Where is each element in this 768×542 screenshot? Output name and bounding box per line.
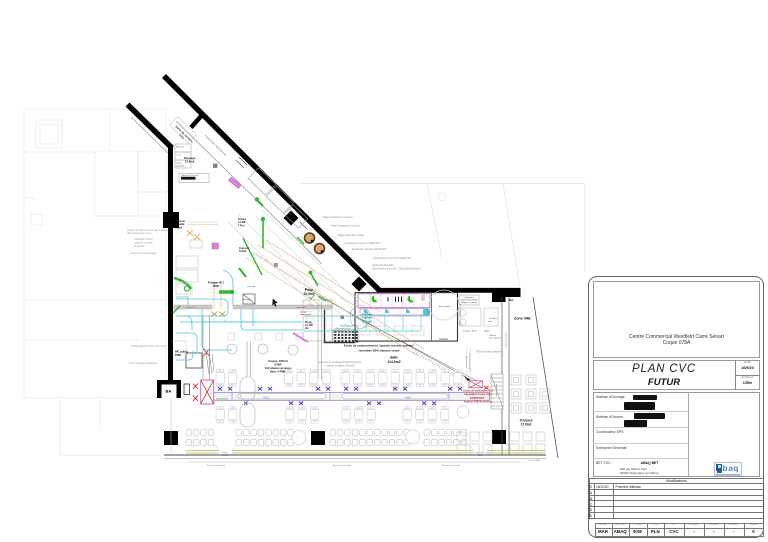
svg-text:7 Pro: 7 Pro: [238, 223, 245, 227]
svg-text:Penderie: Penderie: [489, 318, 498, 320]
svg-text:114,5m2: 114,5m2: [387, 360, 400, 364]
svg-text:Vestiaire: Vestiaire: [439, 338, 449, 341]
svg-text:7,5m2: 7,5m2: [175, 225, 183, 229]
svg-text:Rejet Extracteur Cuisson: Rejet Extracteur Cuisson: [323, 215, 353, 219]
svg-text:PMR: PMR: [175, 353, 181, 357]
svg-text:CF 2h: CF 2h: [300, 311, 307, 314]
svg-text:Dévoiement: Dévoiement: [216, 397, 228, 400]
svg-text:poubelle: poubelle: [176, 166, 185, 168]
svg-text:vest. Vestiaire: vest. Vestiaire: [489, 337, 502, 340]
svg-text:Clayton - 5 portes: Clayton - 5 portes: [461, 301, 477, 304]
svg-text:Rejet Extracteur Cuisine: Rejet Extracteur Cuisine: [331, 224, 360, 228]
svg-text:Local: Local: [176, 163, 182, 165]
svg-text:hauteur 180cm environ: hauteur 180cm environ: [464, 400, 493, 404]
svg-text:Sortie: Sortie: [222, 454, 228, 457]
svg-text:Extraction Cuisine 6300m3/h: Extraction Cuisine 6300m3/h: [352, 247, 387, 251]
svg-text:Dévoiement: Dévoiement: [465, 356, 468, 368]
svg-text:Réserve: Réserve: [176, 146, 185, 149]
svg-text:Tour à pizza: Tour à pizza: [439, 305, 452, 308]
svg-text:Ressaut (vestiaire): Ressaut (vestiaire): [333, 464, 352, 467]
svg-text:Ecran de cantonnement "grande: Ecran de cantonnement "grande cuisine ou…: [344, 344, 415, 348]
svg-text:Flux nouvelles générales: Flux nouvelles générales: [129, 361, 158, 365]
svg-text:Gaine technique: Gaine technique: [505, 332, 508, 349]
svg-text:Ressaut (vestiaire): Ressaut (vestiaire): [207, 464, 226, 467]
svg-text:dès la détection de la: dès la détection de la: [127, 231, 152, 235]
svg-text:BA: BA: [166, 389, 172, 394]
svg-text:WC public: WC public: [175, 350, 189, 354]
svg-text:Zone VAE: Zone VAE: [514, 317, 531, 321]
svg-text:BA: BA: [509, 298, 514, 302]
svg-text:Griffe Société Elec: Griffe Société Elec: [372, 263, 395, 267]
svg-text:Salle: Salle: [390, 356, 398, 360]
svg-text:cloison H3: cloison H3: [186, 307, 196, 309]
svg-text:Extracteur Cuisson 6300m3/h: Extracteur Cuisson 6300m3/h: [345, 241, 381, 245]
svg-text:extraction+amenée: extraction+amenée: [468, 352, 471, 371]
svg-text:Introduction d'air neuf 6300m3: Introduction d'air neuf 6300m3/h: [373, 256, 412, 260]
svg-text:élé: élé: [305, 327, 309, 330]
svg-text:PhD immobile quittante: PhD immobile quittante: [476, 351, 502, 354]
svg-text:Gaine sécurité drive vers haut: Gaine sécurité drive vers haut: [131, 344, 166, 348]
svg-text:Apport d'air neuf: Apport d'air neuf: [182, 174, 198, 177]
svg-text:Soufflerie presse: Soufflerie presse: [336, 330, 353, 333]
svg-text:coupure cuisson: coupure cuisson: [134, 241, 153, 245]
svg-text:cloison H3: cloison H3: [296, 307, 306, 309]
svg-text:4000: 4000: [263, 395, 269, 399]
svg-text:vest.: vest.: [488, 320, 493, 323]
svg-text:10,5m2: 10,5m2: [303, 292, 315, 296]
svg-text:Limite GBA: Limite GBA: [528, 459, 540, 462]
svg-text:11,0m2: 11,0m2: [185, 160, 195, 164]
svg-text:Désenfumage escalier: Désenfumage escalier: [459, 304, 462, 326]
svg-text:l'égout: l'égout: [484, 330, 490, 333]
svg-text:retombée 20% hauteur totale: retombée 20% hauteur totale: [358, 349, 399, 353]
svg-text:T sec: T sec: [176, 155, 182, 157]
svg-text:Rejet Extra face Patio: Rejet Extra face Patio: [338, 233, 364, 237]
svg-text:Détection HVAC: Détection HVAC: [134, 237, 153, 241]
svg-text:+ gaines en gaine 400x200: + gaines en gaine 400x200: [325, 365, 356, 368]
svg-text:et séparé: et séparé: [134, 244, 145, 248]
svg-text:Sortie: Sortie: [477, 454, 483, 457]
svg-text:RPB: RPB: [213, 284, 219, 288]
svg-text:Coteau de compactage: Coteau de compactage: [130, 251, 157, 255]
svg-text:4000: 4000: [405, 395, 411, 399]
svg-text:EXISTANT: EXISTANT: [470, 396, 485, 400]
svg-text:tour aérat.: tour aérat.: [243, 298, 252, 301]
svg-text:Soufflage presse: Soufflage presse: [340, 325, 359, 328]
svg-text:17,0m2: 17,0m2: [521, 423, 532, 427]
svg-text:Dimensions (HxLxP) : 100x1600x: Dimensions (HxLxP) : 100x1600x500mm: [372, 267, 422, 271]
svg-text:5,0m2: 5,0m2: [239, 249, 247, 253]
svg-text:Ressaut (vestiaire): Ressaut (vestiaire): [442, 464, 461, 467]
svg-text:2 portes / Food: 2 portes / Food: [463, 330, 476, 333]
svg-text:Sortie secours: Sortie secours: [495, 384, 498, 397]
svg-text:Console: Console: [247, 286, 256, 288]
svg-text:Ecran de cantonnement: Ecran de cantonnement: [463, 389, 493, 393]
